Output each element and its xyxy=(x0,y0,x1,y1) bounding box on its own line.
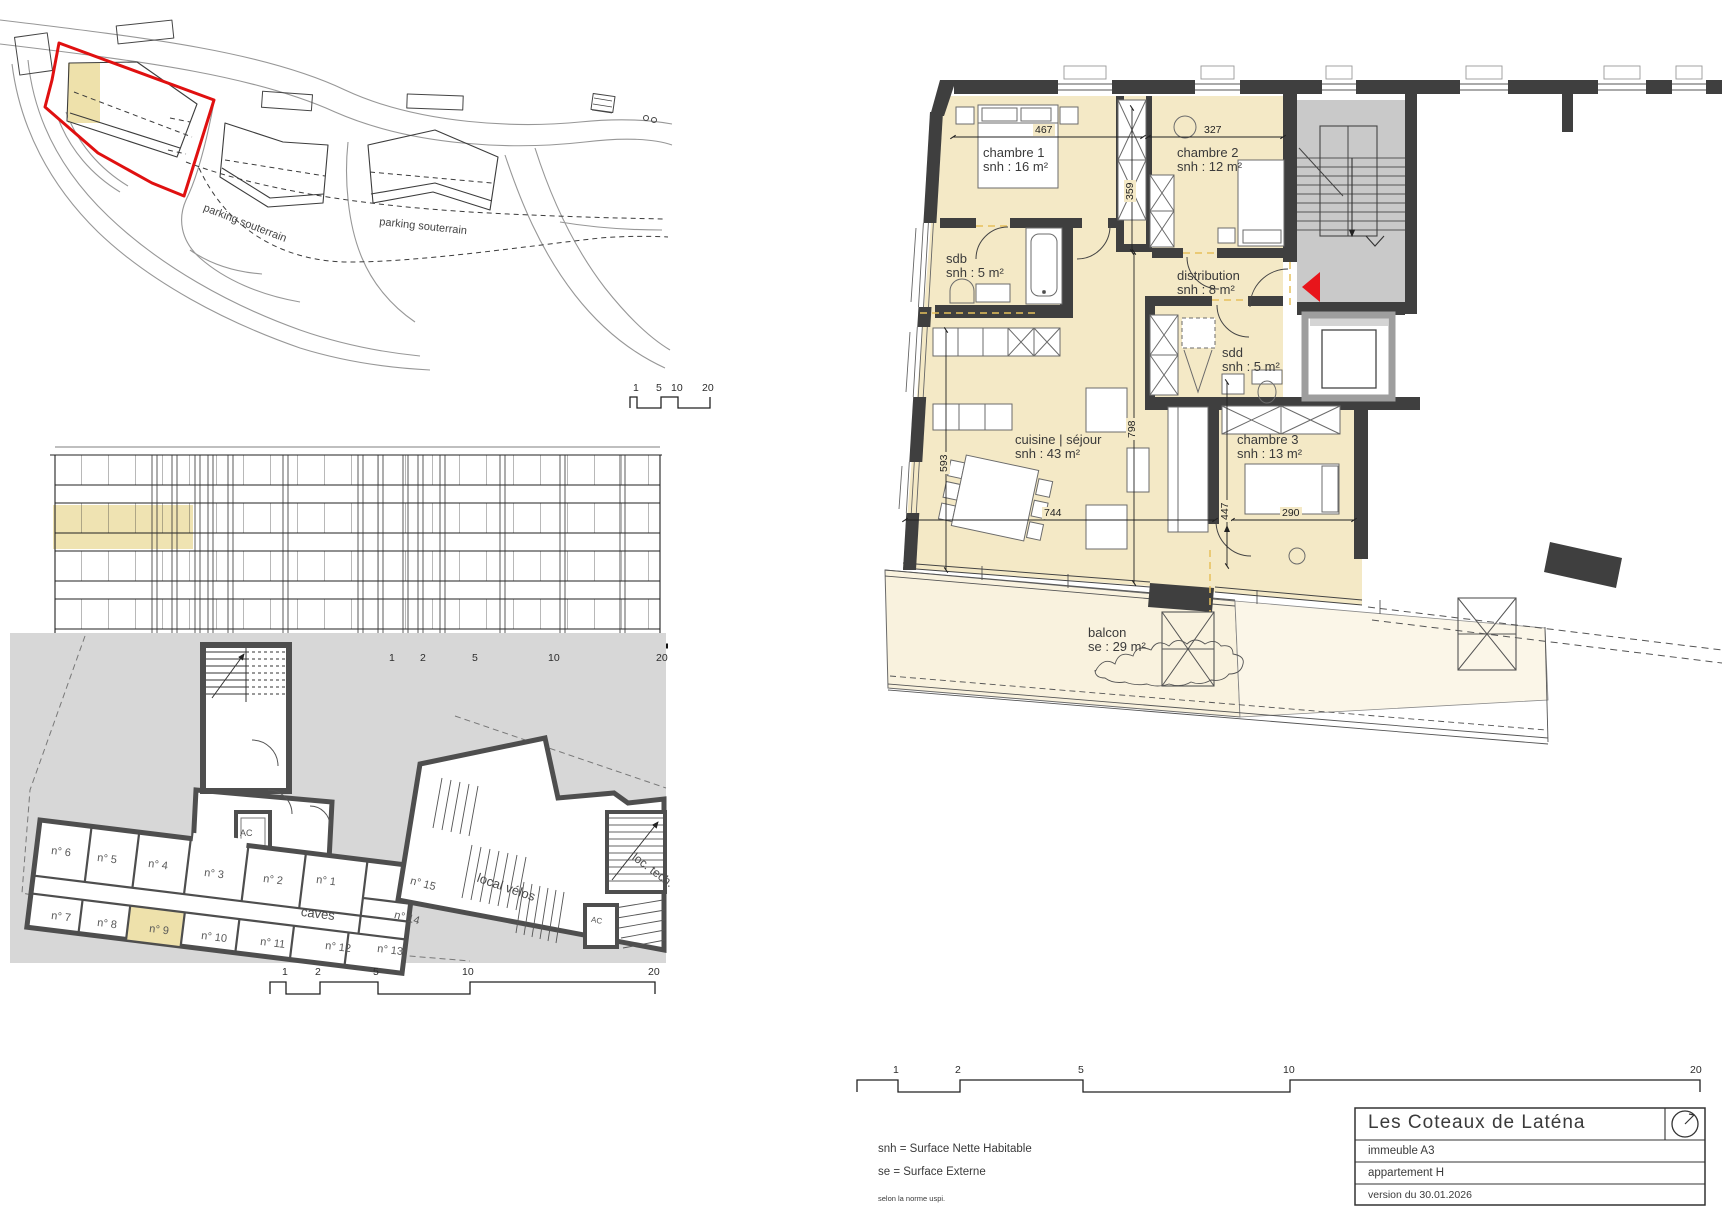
room-label-sdb: sdbsnh : 5 m² xyxy=(946,252,1004,280)
cave-label-9: n° 9 xyxy=(149,923,170,937)
dim-290: 290 xyxy=(1280,507,1302,519)
scalebar-elevation-label: 2 xyxy=(420,652,426,664)
scalebar-main xyxy=(857,1080,1700,1092)
room-label-balcon: balconse : 29 m² xyxy=(1088,626,1146,654)
cave-label-3: n° 3 xyxy=(204,867,225,881)
scalebar-mini xyxy=(630,397,710,408)
scalebar-elevation-label: 1 xyxy=(389,652,395,664)
scalebar-mini-label: 5 xyxy=(656,382,662,394)
legend-norm: selon la norme uspi. xyxy=(878,1194,945,1203)
cave-label-5: n° 5 xyxy=(97,852,118,866)
elevation-drawing xyxy=(10,447,668,646)
dim-798: 798 xyxy=(1126,418,1138,440)
scalebar-main-label: 1 xyxy=(893,1064,899,1076)
cave-label-7: n° 7 xyxy=(51,910,72,924)
scalebar-main-label: 2 xyxy=(955,1064,961,1076)
site-plan xyxy=(0,20,672,370)
scalebar-basement xyxy=(270,982,655,994)
scalebar-elevation-label: 5 xyxy=(472,652,478,664)
scalebar-basement-label: 5 xyxy=(373,966,379,978)
scalebar-basement-label: 10 xyxy=(462,966,474,978)
scalebar-mini-label: 1 xyxy=(633,382,639,394)
cave-label-4: n° 4 xyxy=(148,858,169,872)
legend-snh: snh = Surface Nette Habitable xyxy=(878,1143,1032,1155)
dim-593: 593 xyxy=(938,452,950,474)
dim-327: 327 xyxy=(1202,124,1224,136)
room-label-chambre-1: chambre 1snh : 16 m² xyxy=(983,146,1048,174)
cave-label-1: n° 1 xyxy=(316,874,337,888)
legend-se: se = Surface Externe xyxy=(878,1166,986,1178)
scalebar-mini-label: 10 xyxy=(671,382,683,394)
scalebar-basement-label: 1 xyxy=(282,966,288,978)
elevator-label: AC xyxy=(240,828,253,838)
scalebar-main-label: 5 xyxy=(1078,1064,1084,1076)
dim-467: 467 xyxy=(1033,124,1055,136)
scalebar-elevation-label: 10 xyxy=(548,652,560,664)
scalebar-basement-label: 20 xyxy=(648,966,660,978)
scalebar-elevation-label: 20 xyxy=(656,652,668,664)
room-label-distribution: distributionsnh : 8 m² xyxy=(1177,269,1240,297)
version-date: version du 30.01.2026 xyxy=(1368,1189,1472,1201)
architectural-sheet: { "site": { "parking_label_1": "parking … xyxy=(0,0,1722,1219)
scalebar-basement-label: 2 xyxy=(315,966,321,978)
dim-744: 744 xyxy=(1042,507,1064,519)
scalebar-main-label: 20 xyxy=(1690,1064,1702,1076)
stairwell xyxy=(1297,100,1405,302)
room-label-chambre-3: chambre 3snh : 13 m² xyxy=(1237,433,1302,461)
sheet-drawing xyxy=(0,0,1722,1219)
room-label-chambre-2: chambre 2snh : 12 m² xyxy=(1177,146,1242,174)
apartment-name: appartement H xyxy=(1368,1167,1444,1179)
cave-label-6: n° 6 xyxy=(51,845,72,859)
dim-447: 447 xyxy=(1219,500,1231,522)
room-label-cuisine-sejour: cuisine | séjoursnh : 43 m² xyxy=(1015,433,1101,461)
project-title: Les Coteaux de Laténa xyxy=(1368,1112,1586,1134)
room-label-sdd: sddsnh : 5 m² xyxy=(1222,346,1280,374)
elevator2-label: AC xyxy=(590,915,603,926)
balcony-pillar xyxy=(1148,583,1214,612)
scalebar-main-label: 10 xyxy=(1283,1064,1295,1076)
building-name: immeuble A3 xyxy=(1368,1145,1434,1157)
cave-label-8: n° 8 xyxy=(97,917,118,931)
scalebar-mini-label: 20 xyxy=(702,382,714,394)
cave-label-2: n° 2 xyxy=(263,873,284,887)
dim-359: 359 xyxy=(1124,180,1136,202)
